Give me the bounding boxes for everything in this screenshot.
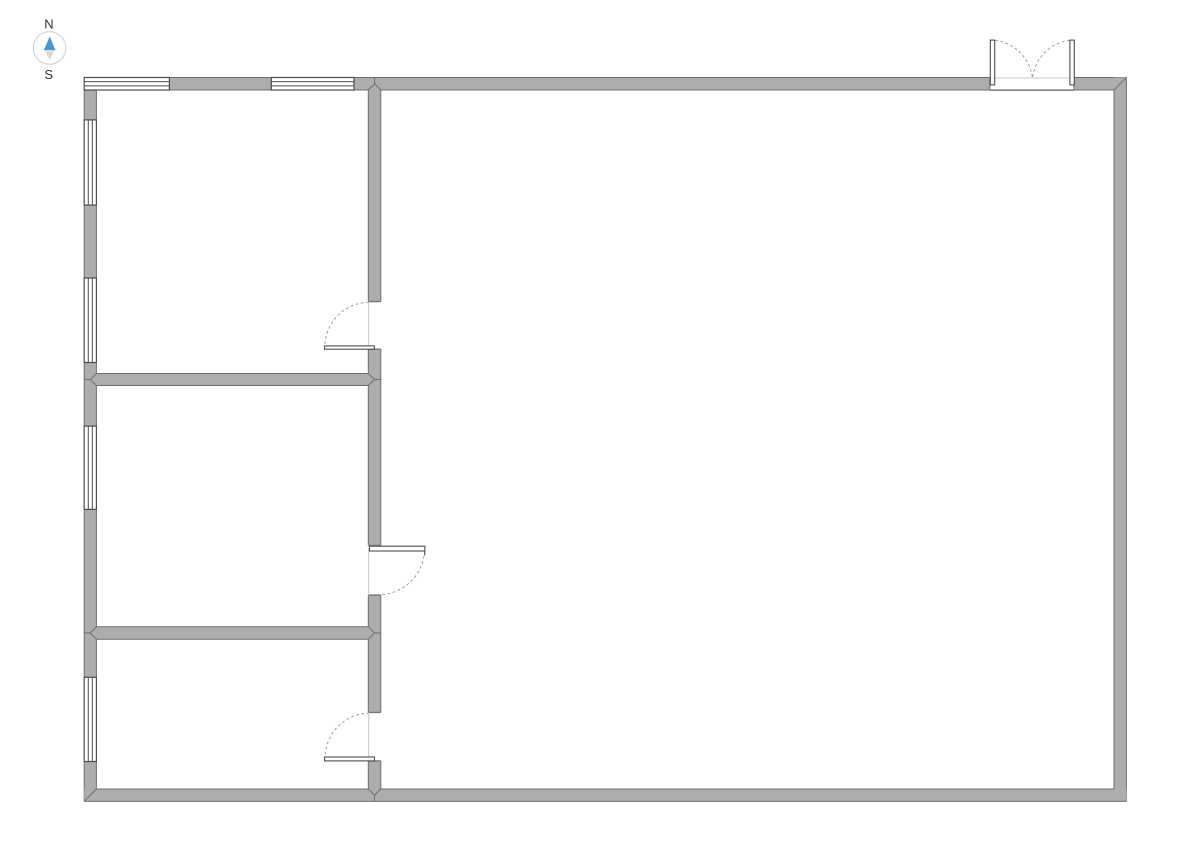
svg-text:S: S bbox=[44, 67, 53, 82]
svg-text:N: N bbox=[44, 17, 53, 32]
